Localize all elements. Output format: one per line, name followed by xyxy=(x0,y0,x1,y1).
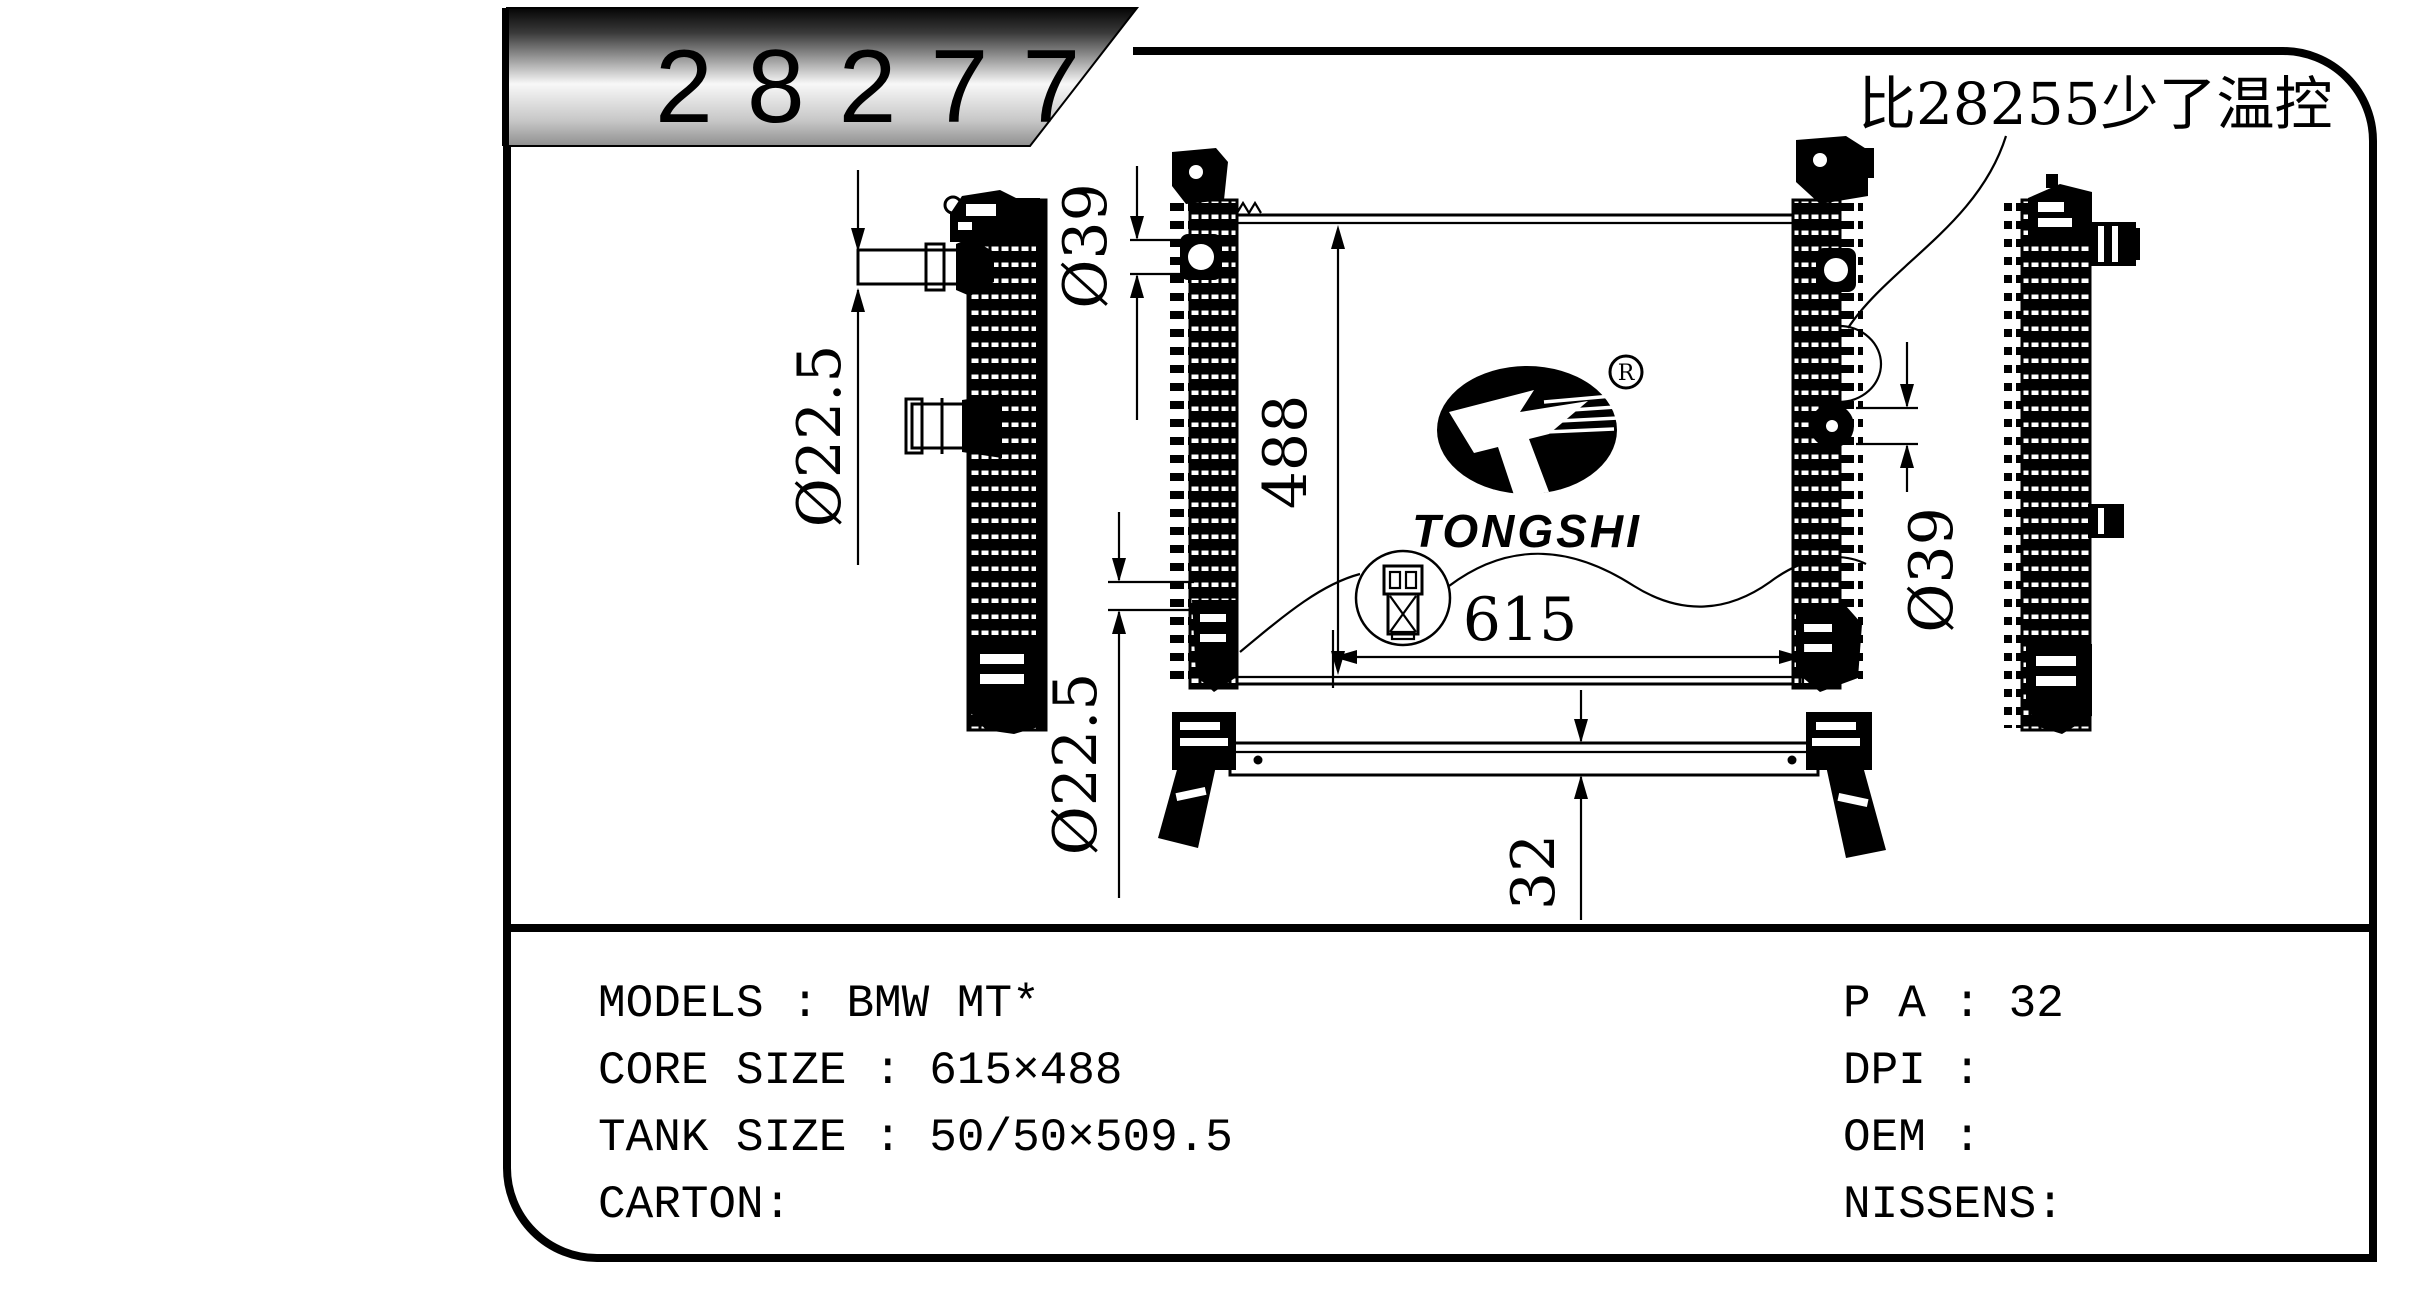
dim-inlet-port-label: Ø39 xyxy=(1051,183,1121,309)
tongshi-logo: R TONGSHI xyxy=(1412,356,1642,557)
right-top-pipe xyxy=(2090,222,2140,266)
crossmember-right-connector xyxy=(1806,712,1886,858)
right-tank-side-view xyxy=(2004,174,2140,734)
left-bottom-connector xyxy=(1192,600,1238,692)
dim-core-width-label: 615 xyxy=(1463,585,1578,655)
brand-wordmark: TONGSHI xyxy=(1412,505,1642,557)
dim-inlet-pipe: Ø22.5 xyxy=(785,170,865,565)
part-number-banner: 28277 xyxy=(502,8,1137,146)
right-lower-stub xyxy=(2088,504,2124,538)
spec-carton: CARTON: xyxy=(598,1179,791,1231)
annotation-note: 比28255少了温控 xyxy=(1858,70,2333,138)
dim-core-height: 488 xyxy=(1251,225,1345,675)
dim-inlet-port: Ø39 xyxy=(1051,166,1186,420)
right-upper-port-hole xyxy=(1816,248,1856,292)
spec-sheet: 28277 比28255少了温控 xyxy=(0,0,2421,1301)
spec-table: MODELS : BMW MT* CORE SIZE : 615×488 TAN… xyxy=(598,978,2064,1231)
spec-tank-size: TANK SIZE : 50/50×509.5 xyxy=(598,1112,1233,1164)
crossmember-left-connector xyxy=(1158,712,1236,848)
dim-outlet-port-label: Ø39 xyxy=(1897,507,1967,633)
left-tank-side-view xyxy=(858,190,1046,734)
spec-nissens: NISSENS: xyxy=(1843,1179,2064,1231)
spec-core-size: CORE SIZE : 615×488 xyxy=(598,1045,1123,1097)
inlet-pipe xyxy=(858,238,994,296)
part-number: 28277 xyxy=(655,29,1114,145)
spec-dpi: DPI : xyxy=(1843,1045,1981,1097)
spec-oem: OEM : xyxy=(1843,1112,1981,1164)
right-lower-port-hole xyxy=(1810,404,1854,448)
spec-pa: P A : 32 xyxy=(1843,978,2064,1030)
dim-crossmember: 32 xyxy=(1499,690,1588,920)
dim-inlet-pipe-label: Ø22.5 xyxy=(785,345,855,528)
registered-trademark-letter: R xyxy=(1618,361,1636,386)
left-port-hole xyxy=(1180,234,1222,280)
mid-stub-pipe xyxy=(906,394,1002,458)
dim-core-height-label: 488 xyxy=(1251,395,1321,510)
spec-models: MODELS : BMW MT* xyxy=(598,978,1040,1030)
dim-crossmember-label: 32 xyxy=(1499,834,1569,910)
right-bottom-connector xyxy=(1796,606,1862,692)
dim-outlet-pipe-label: Ø22.5 xyxy=(1041,673,1111,856)
